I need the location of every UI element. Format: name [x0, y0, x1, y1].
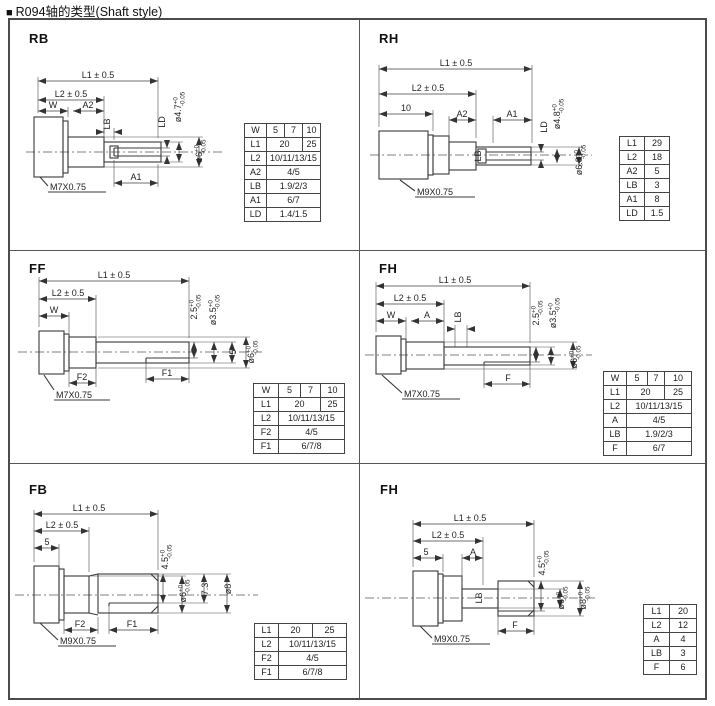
- dim-value: 3: [670, 647, 697, 661]
- thread-label: M7X0.75: [404, 389, 440, 399]
- dim-value: 1.4/1.5: [267, 208, 321, 222]
- dim-value: 5: [279, 384, 301, 398]
- dim-label-f2: F2: [77, 372, 88, 382]
- dim-value: 6/7/8: [279, 440, 345, 454]
- dim-label-l2: L2 ± 0.5: [432, 530, 464, 540]
- dim-label-a1: A1: [130, 172, 141, 182]
- dim-value: 18: [645, 151, 670, 165]
- dim-value: 6/7: [627, 442, 692, 456]
- table-row: A16/7: [245, 194, 321, 208]
- table-row: L210/11/13/15: [604, 400, 692, 414]
- table-row: L210/11/13/15: [245, 152, 321, 166]
- dim-row-label: A: [604, 414, 627, 428]
- table-row: F16/7/8: [254, 440, 345, 454]
- fb-outline: [15, 566, 258, 646]
- dim-row-label: L2: [644, 619, 670, 633]
- dim-label-5: 5: [44, 537, 49, 547]
- table-row: L218: [620, 151, 670, 165]
- dim-label-w: W: [49, 100, 58, 110]
- dimension-table: L120L212A4LB3F6: [643, 604, 697, 675]
- dim-value: 25: [313, 624, 347, 638]
- dim-value: 20: [627, 386, 665, 400]
- dim-label-dia-6: ø6+0-0.05: [556, 586, 570, 610]
- panel-fh-middle: FH: [360, 251, 705, 464]
- panel-rh: RH: [360, 20, 705, 251]
- dim-row-label: A2: [620, 165, 645, 179]
- table-row: F24/5: [254, 426, 345, 440]
- dim-row-label: A: [644, 633, 670, 647]
- dim-row-label: F2: [254, 426, 279, 440]
- ff-outline: [18, 331, 262, 400]
- table-row: A4/5: [604, 414, 692, 428]
- dim-value: 5: [267, 124, 285, 138]
- dim-label-dia-8: ø8: [223, 584, 233, 595]
- dim-row-label: W: [245, 124, 267, 138]
- dim-row-label: A1: [245, 194, 267, 208]
- thread-label: M9X0.75: [417, 187, 453, 197]
- dim-row-label: F1: [254, 440, 279, 454]
- table-row: F24/5: [255, 652, 347, 666]
- dim-row-label: L2: [620, 151, 645, 165]
- dimension-table: L12025L210/11/13/15F24/5F16/7/8: [254, 623, 347, 680]
- table-row: L12025: [245, 138, 321, 152]
- dim-label-dia-6: ø6+0-0.05: [178, 579, 192, 603]
- dim-value: 5: [645, 165, 670, 179]
- table-row: L212: [644, 619, 697, 633]
- dim-value: 1.9/2/3: [627, 428, 692, 442]
- dim-row-label: LB: [644, 647, 670, 661]
- shaft-style-grid: RB: [8, 18, 707, 700]
- dim-label-2-5: 2.5+0-0.05: [531, 300, 545, 326]
- table-row: F6: [644, 661, 697, 675]
- dim-label-a2: A2: [82, 100, 93, 110]
- dim-row-label: L1: [620, 137, 645, 151]
- table-row: LB1.9/2/3: [245, 180, 321, 194]
- dim-row-label: L1: [604, 386, 627, 400]
- dim-label-a: A: [424, 310, 430, 320]
- dim-value: 4/5: [279, 652, 347, 666]
- dim-value: 20: [279, 398, 321, 412]
- dim-label-l1: L1 ± 0.5: [73, 503, 105, 513]
- table-row: A4: [644, 633, 697, 647]
- panel-fb: FB: [10, 464, 360, 698]
- thread-label: M9X0.75: [60, 636, 96, 646]
- dim-label-a: A: [470, 547, 476, 557]
- table-row: L129: [620, 137, 670, 151]
- dim-label-4-5: 4.5+0-0.05: [160, 544, 174, 570]
- fh2-outline: [365, 336, 592, 399]
- dim-value: 5: [627, 372, 648, 386]
- thread-label: M9X0.75: [434, 634, 470, 644]
- dim-value: 6: [670, 661, 697, 675]
- dim-label-ld: LD: [539, 121, 549, 133]
- dim-row-label: LD: [245, 208, 267, 222]
- dim-value: 1.5: [645, 207, 670, 221]
- dim-label-l1: L1 ± 0.5: [439, 275, 471, 285]
- dim-label-4-5: 4.5+0-0.05: [537, 550, 551, 576]
- dim-label-l2: L2 ± 0.5: [55, 89, 87, 99]
- dim-value: 10/11/13/15: [279, 638, 347, 652]
- rh-dim-labels: L1 ± 0.5 L2 ± 0.5 10 A2 A1 LB LD ø4.8+0-…: [401, 58, 588, 197]
- rh-outline: [370, 131, 592, 197]
- dim-value: 7: [648, 372, 665, 386]
- table-row: W5710: [245, 124, 321, 138]
- dim-table-fh-middle: W5710L12025L210/11/13/15A4/5LB1.9/2/3F6/…: [603, 371, 692, 456]
- dim-label-w: W: [387, 310, 396, 320]
- thread-label: M7X0.75: [56, 390, 92, 400]
- dim-row-label: F: [604, 442, 627, 456]
- table-row: L12025: [255, 624, 347, 638]
- panel-fh-bottom: FH: [360, 464, 705, 698]
- dim-value: 6/7/8: [279, 666, 347, 680]
- dim-value: 4/5: [267, 166, 321, 180]
- dim-row-label: LB: [620, 179, 645, 193]
- dim-row-label: L2: [245, 152, 267, 166]
- dim-label-lb: LB: [102, 118, 112, 129]
- dim-row-label: W: [254, 384, 279, 398]
- dim-label-l2: L2 ± 0.5: [46, 520, 78, 530]
- table-row: LB3: [620, 179, 670, 193]
- table-row: L120: [644, 605, 697, 619]
- dim-label-w: W: [50, 305, 59, 315]
- dim-value: 29: [645, 137, 670, 151]
- dim-value: 10: [321, 384, 345, 398]
- dim-value: 25: [303, 138, 321, 152]
- table-row: A24/5: [245, 166, 321, 180]
- dim-row-label: L2: [254, 412, 279, 426]
- dim-label-dia-6: ø6+0-0.05: [194, 139, 208, 163]
- dim-value: 25: [665, 386, 692, 400]
- dim-label-l2: L2 ± 0.5: [412, 83, 444, 93]
- table-row: L12025: [254, 398, 345, 412]
- dim-value: 10: [303, 124, 321, 138]
- table-row: LB1.9/2/3: [604, 428, 692, 442]
- dim-label-5: 5: [228, 349, 238, 354]
- dim-row-label: L1: [255, 624, 279, 638]
- table-row: W5710: [604, 372, 692, 386]
- dim-value: 20: [279, 624, 313, 638]
- table-row: LB3: [644, 647, 697, 661]
- dim-label-dia-6: ø6+0-0.05: [569, 345, 583, 369]
- page-title-text: R094轴的类型(Shaft style): [16, 5, 163, 19]
- dim-label-dia-3-5: ø3.5+0-0.05: [548, 297, 562, 328]
- dim-value: 7: [301, 384, 321, 398]
- dim-label-f: F: [512, 620, 518, 630]
- dim-row-label: F2: [255, 652, 279, 666]
- table-row: A25: [620, 165, 670, 179]
- dim-row-label: L1: [644, 605, 670, 619]
- dim-label-7-3: 7.3: [200, 583, 210, 596]
- table-row: W5710: [254, 384, 345, 398]
- datasheet-page: ■R094轴的类型(Shaft style) RB: [0, 0, 715, 706]
- dim-value: 10/11/13/15: [627, 400, 692, 414]
- dimension-table: W5710L12025L210/11/13/15F24/5F16/7/8: [253, 383, 345, 454]
- dimension-table: W5710L12025L210/11/13/15A4/5LB1.9/2/3F6/…: [603, 371, 692, 456]
- dim-label-dia-4-7: ø4.7+0-0.05: [173, 91, 187, 122]
- dim-label-l1: L1 ± 0.5: [98, 270, 130, 280]
- dim-label-ld: LD: [157, 116, 167, 128]
- dim-value: 20: [670, 605, 697, 619]
- dim-value: 6/7: [267, 194, 321, 208]
- fh2-dim-labels: L1 ± 0.5 L2 ± 0.5 W A LB F 2.5+0-0.05 ø3…: [387, 275, 583, 399]
- dim-value: 4/5: [627, 414, 692, 428]
- dim-label-f2: F2: [75, 619, 86, 629]
- table-row: F16/7/8: [255, 666, 347, 680]
- table-row: L210/11/13/15: [254, 412, 345, 426]
- panel-ff: FF: [10, 251, 360, 464]
- dim-value: 25: [321, 398, 345, 412]
- dim-value: 4/5: [279, 426, 345, 440]
- dim-value: 4: [670, 633, 697, 647]
- ff-dim-labels: L1 ± 0.5 L2 ± 0.5 W F2 F1 2.5+0-0.05 ø3.…: [50, 270, 260, 400]
- dim-label-2-5: 2.5+0-0.05: [189, 294, 203, 320]
- dim-label-dia-6: ø6+0-0.05: [246, 340, 260, 364]
- dim-label-lb: LB: [473, 150, 483, 161]
- dim-row-label: L2: [604, 400, 627, 414]
- dim-label-f1: F1: [127, 619, 138, 629]
- fh3-dim-labels: L1 ± 0.5 L2 ± 0.5 5 A LB F 4.5+0-0.05 ø6…: [423, 513, 591, 644]
- dim-table-fb: L12025L210/11/13/15F24/5F16/7/8: [254, 623, 347, 680]
- dim-row-label: L2: [255, 638, 279, 652]
- dimension-table: L129L218A25LB3A18LD1.5: [619, 136, 670, 221]
- rb-outline: [26, 117, 222, 192]
- dim-label-lb: LB: [453, 311, 463, 322]
- dim-label-a2: A2: [456, 109, 467, 119]
- dim-value: 10: [665, 372, 692, 386]
- dim-row-label: A2: [245, 166, 267, 180]
- dim-row-label: LD: [620, 207, 645, 221]
- table-row: LD1.5: [620, 207, 670, 221]
- table-row: A18: [620, 193, 670, 207]
- dim-value: 7: [285, 124, 303, 138]
- thread-label: M7X0.75: [50, 182, 86, 192]
- dim-label-l1: L1 ± 0.5: [440, 58, 472, 68]
- dim-label-a1: A1: [506, 109, 517, 119]
- dim-table-fh-bottom: L120L212A4LB3F6: [643, 604, 697, 675]
- dim-label-5: 5: [423, 547, 428, 557]
- dim-label-10: 10: [401, 103, 411, 113]
- dim-label-l1: L1 ± 0.5: [454, 513, 486, 523]
- dim-row-label: L1: [254, 398, 279, 412]
- dimension-table: W5710L12025L210/11/13/15A24/5LB1.9/2/3A1…: [244, 123, 321, 222]
- dim-row-label: F: [644, 661, 670, 675]
- dim-value: 10/11/13/15: [279, 412, 345, 426]
- dim-table-rb: W5710L12025L210/11/13/15A24/5LB1.9/2/3A1…: [244, 123, 321, 222]
- dim-label-f: F: [505, 373, 511, 383]
- dim-value: 8: [645, 193, 670, 207]
- dim-label-dia-6-8: ø6.8+0-0.05: [574, 144, 588, 175]
- dim-label-dia-4-8: ø4.8+0-0.05: [552, 98, 566, 129]
- table-row: F6/7: [604, 442, 692, 456]
- dim-row-label: F1: [255, 666, 279, 680]
- dim-value: 12: [670, 619, 697, 633]
- dim-row-label: W: [604, 372, 627, 386]
- dim-row-label: L1: [245, 138, 267, 152]
- dim-label-dia-8: ø8+0-0.05: [578, 586, 592, 610]
- dim-value: 10/11/13/15: [267, 152, 321, 166]
- dim-row-label: A1: [620, 193, 645, 207]
- table-row: LD1.4/1.5: [245, 208, 321, 222]
- dim-label-lb: LB: [474, 592, 484, 603]
- dim-label-dia-3-5: ø3.5+0-0.05: [208, 294, 222, 325]
- panel-rb: RB: [10, 20, 360, 251]
- dim-label-l2: L2 ± 0.5: [52, 288, 84, 298]
- dim-row-label: LB: [604, 428, 627, 442]
- dim-label-l2: L2 ± 0.5: [394, 293, 426, 303]
- dim-row-label: LB: [245, 180, 267, 194]
- dim-table-rh: L129L218A25LB3A18LD1.5: [619, 136, 670, 221]
- dim-value: 20: [267, 138, 303, 152]
- table-row: L210/11/13/15: [255, 638, 347, 652]
- dim-value: 3: [645, 179, 670, 193]
- rb-dim-labels: L1 ± 0.5 L2 ± 0.5 W A2 A1 LB LD ø4.7+0-0…: [49, 70, 208, 192]
- dim-value: 1.9/2/3: [267, 180, 321, 194]
- table-row: L12025: [604, 386, 692, 400]
- dim-label-f1: F1: [162, 368, 173, 378]
- dim-label-l1: L1 ± 0.5: [82, 70, 114, 80]
- dim-table-ff: W5710L12025L210/11/13/15F24/5F16/7/8: [253, 383, 345, 454]
